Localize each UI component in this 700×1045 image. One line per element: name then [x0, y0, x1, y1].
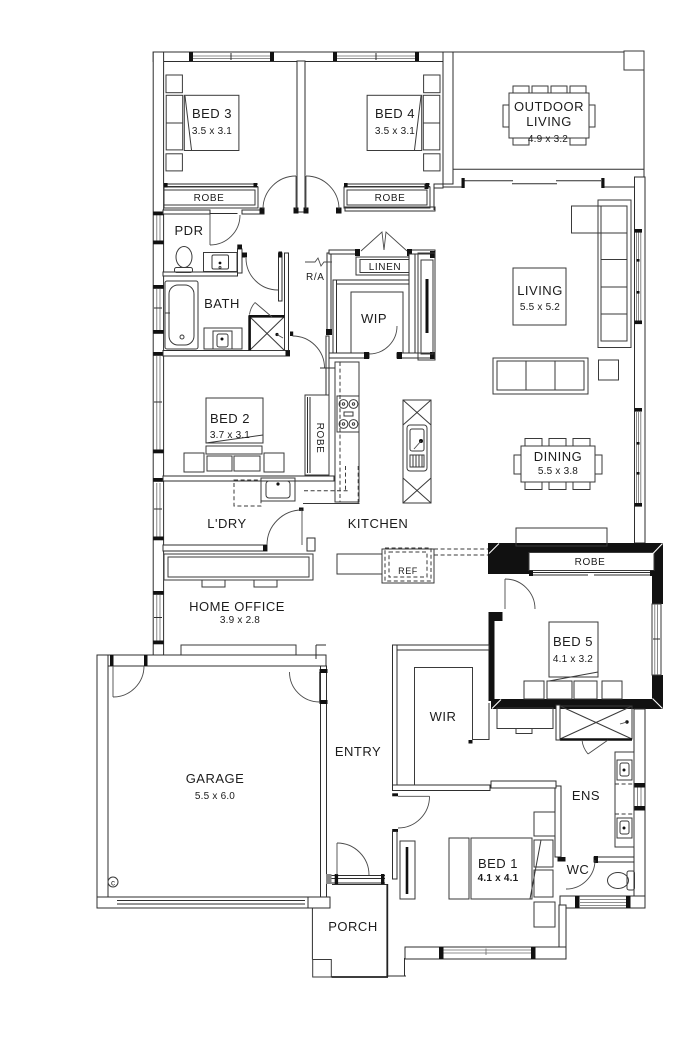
svg-text:4.9 x 3.2: 4.9 x 3.2	[528, 134, 568, 145]
svg-text:GARAGE: GARAGE	[186, 771, 245, 786]
svg-text:5.5 x 3.8: 5.5 x 3.8	[538, 466, 578, 477]
svg-text:5.5 x 5.2: 5.5 x 5.2	[520, 302, 560, 313]
svg-text:ROBE: ROBE	[314, 423, 325, 454]
svg-text:L'DRY: L'DRY	[207, 516, 246, 531]
svg-text:WIR: WIR	[430, 709, 457, 724]
svg-text:PDR: PDR	[175, 223, 204, 238]
svg-text:DINING: DINING	[534, 449, 583, 464]
svg-text:4.1 x 4.1: 4.1 x 4.1	[478, 873, 519, 884]
svg-text:LINEN: LINEN	[369, 262, 401, 273]
svg-text:OUTDOOR: OUTDOOR	[514, 99, 584, 114]
svg-text:ROBE: ROBE	[194, 193, 225, 204]
svg-text:BED 3: BED 3	[192, 106, 232, 121]
svg-text:ENTRY: ENTRY	[335, 744, 381, 759]
svg-text:BATH: BATH	[204, 296, 240, 311]
svg-text:3.9 x 2.8: 3.9 x 2.8	[220, 615, 260, 626]
svg-text:3.5 x 3.1: 3.5 x 3.1	[375, 126, 415, 137]
svg-text:R/A: R/A	[306, 272, 324, 283]
svg-text:LIVING: LIVING	[526, 114, 572, 129]
svg-text:BED 1: BED 1	[478, 856, 518, 871]
svg-text:BED 5: BED 5	[553, 634, 593, 649]
svg-text:WIP: WIP	[361, 311, 387, 326]
svg-text:ROBE: ROBE	[375, 193, 406, 204]
svg-text:5.5 x 6.0: 5.5 x 6.0	[195, 791, 235, 802]
svg-text:4.1 x 3.2: 4.1 x 3.2	[553, 654, 593, 665]
svg-text:HOME OFFICE: HOME OFFICE	[189, 599, 285, 614]
svg-text:ROBE: ROBE	[575, 557, 606, 568]
svg-text:c: c	[111, 879, 115, 888]
svg-text:LIVING: LIVING	[517, 283, 563, 298]
svg-text:BED 4: BED 4	[375, 106, 415, 121]
svg-text:3.7 x 3.1: 3.7 x 3.1	[210, 430, 250, 441]
svg-text:WC: WC	[567, 862, 590, 877]
svg-text:PORCH: PORCH	[328, 919, 377, 934]
svg-text:BED 2: BED 2	[210, 411, 250, 426]
svg-text:ENS: ENS	[572, 788, 600, 803]
svg-text:REF: REF	[398, 566, 418, 576]
svg-text:KITCHEN: KITCHEN	[348, 516, 409, 531]
svg-text:3.5 x 3.1: 3.5 x 3.1	[192, 126, 232, 137]
